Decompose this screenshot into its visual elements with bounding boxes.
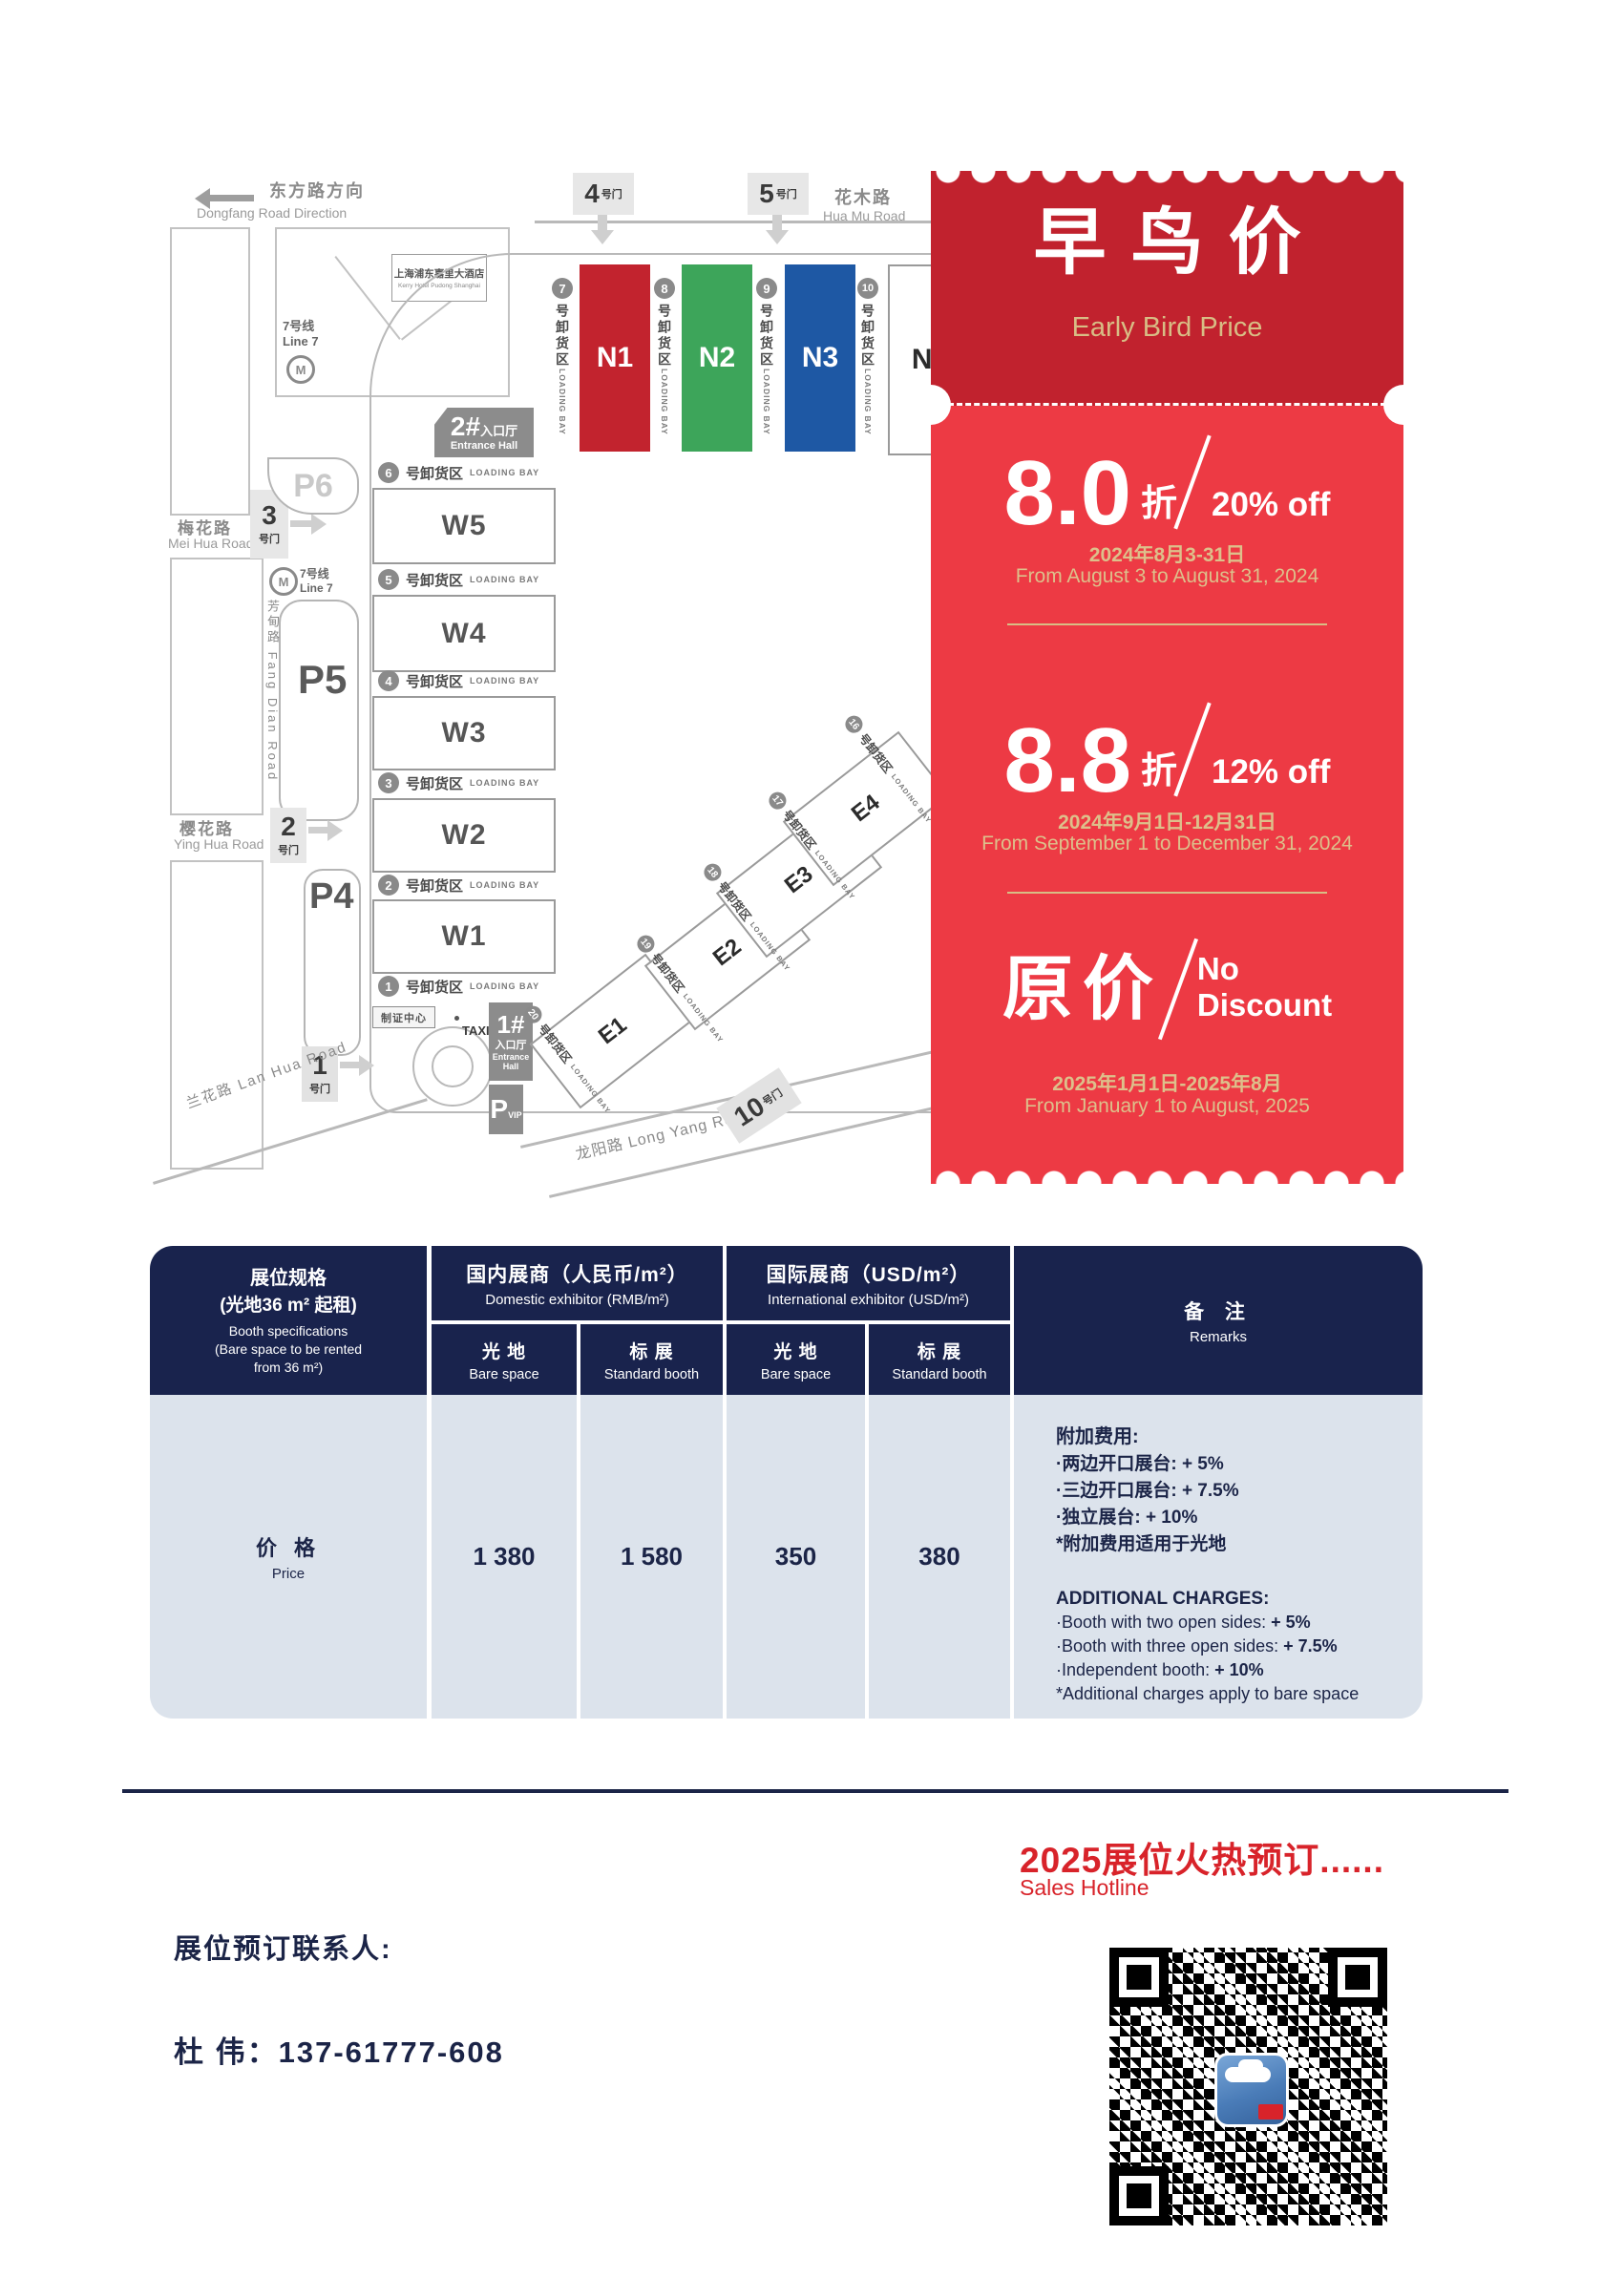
- hall-n3: N3: [785, 264, 855, 452]
- bay-label-zh: 号卸货区: [860, 304, 875, 369]
- price-label-zh: 价 格: [256, 1531, 321, 1562]
- gate-suffix-label: 号门: [278, 842, 299, 857]
- gate-2-number: 2: [281, 813, 296, 840]
- group-domestic-en: Domestic exhibitor (RMB/m²): [485, 1292, 669, 1308]
- banner-scallop-top: [931, 171, 1403, 186]
- qr-center-logo: [1214, 2053, 1289, 2127]
- parking-p4-label: P4: [309, 876, 353, 918]
- remarks-zh-note: *附加费用适用于光地: [1056, 1531, 1403, 1558]
- hall-n2: N2: [682, 264, 752, 452]
- price-domestic-standard: 1 580: [580, 1395, 723, 1719]
- loading-bay-3: 3 号卸货区 LOADING BAY: [378, 772, 539, 793]
- group-domestic-zh: 国内展商（人民币/m²）: [466, 1259, 688, 1288]
- remarks-en-item: ·Independent booth: + 10%: [1056, 1658, 1403, 1682]
- bay-label-en: LOADING BAY: [470, 575, 539, 584]
- flyer-page: 东方路方向 Dongfang Road Direction 花木路 Hua Mu…: [0, 0, 1624, 2278]
- line7-label-zh: 7号线: [300, 565, 333, 581]
- bay-label-zh: 号卸货区: [406, 570, 463, 590]
- loading-bay-4: 4 号卸货区 LOADING BAY: [378, 670, 539, 691]
- table-group-international: 国际展商（USD/m²） International exhibitor (US…: [727, 1246, 1010, 1320]
- footer-divider: [122, 1789, 1508, 1793]
- early-bird-banner: 早鸟价 Early Bird Price 8.0 折 20% off 2024年…: [931, 171, 1403, 1184]
- loading-bay-7: 7 号卸货区LOADING BAY: [551, 278, 574, 435]
- gate-4-arrow-head: [591, 230, 614, 244]
- table-remarks-cell: 附加费用: ·两边开口展台: + 5% ·三边开口展台: + 7.5% ·独立展…: [1014, 1395, 1423, 1719]
- qr-finder-top-right: [1328, 1948, 1387, 2007]
- price-international-bare: 350: [727, 1395, 865, 1719]
- col-bare-en: Bare space: [761, 1367, 831, 1382]
- entrance-2-number: 2#: [451, 411, 480, 441]
- banner-title-zh: 早鸟价: [931, 203, 1403, 284]
- col-standard-en: Standard booth: [604, 1367, 699, 1382]
- spec-en3: from 36 m²): [254, 1359, 323, 1377]
- bay-number: 5: [378, 569, 399, 590]
- gate-3-number: 3: [262, 502, 277, 529]
- bay-label-zh: 号卸货区: [406, 671, 463, 691]
- line7-label-en: Line 7: [283, 334, 319, 348]
- slash-divider: [1173, 702, 1211, 796]
- entrance-1-en: Entrance Hall: [489, 1052, 533, 1071]
- gate-suffix-label: 号门: [601, 186, 622, 201]
- remarks-head-en: Remarks: [1190, 1329, 1247, 1345]
- bay-label-en: LOADING BAY: [762, 369, 771, 435]
- city-block: [170, 558, 264, 815]
- parking-p6-label: P6: [293, 468, 333, 505]
- loading-bay-5: 5 号卸货区 LOADING BAY: [378, 569, 539, 590]
- price-label-en: Price: [272, 1566, 305, 1582]
- tier-2-unit: 折: [1141, 741, 1177, 793]
- gate-4: 4 号门: [573, 173, 634, 215]
- bay-label-en: LOADING BAY: [470, 778, 539, 788]
- china-flag-icon: [1258, 2104, 1283, 2120]
- meihua-road-label-en: Mei Hua Road: [168, 536, 254, 551]
- hall-w1: W1: [372, 899, 556, 974]
- table-price-label-cell: 价 格 Price: [150, 1395, 427, 1719]
- spec-zh1: 展位规格: [250, 1264, 327, 1293]
- bay-number: 2: [378, 875, 399, 896]
- bay-label-zh: 号卸货区: [406, 773, 463, 793]
- gate-1-arrow-icon: [340, 1062, 359, 1068]
- gate-2-arrow-icon: [308, 827, 327, 833]
- gold-divider: [1007, 892, 1327, 894]
- group-international-zh: 国际展商（USD/m²）: [767, 1259, 971, 1288]
- remarks-en-item: ·Booth with two open sides: + 5%: [1056, 1611, 1403, 1635]
- loading-bay-9: 9 号卸货区LOADING BAY: [755, 278, 778, 435]
- entrance-2-en: Entrance Hall: [434, 440, 534, 452]
- table-remarks-header: 备 注 Remarks: [1014, 1246, 1423, 1395]
- remarks-en-note: *Additional charges apply to bare space: [1056, 1682, 1403, 1706]
- metro-glyph: M: [296, 363, 306, 377]
- tier-2-date-zh: 2024年9月1日-12月31日: [931, 807, 1403, 835]
- gate-5-number: 5: [759, 180, 774, 207]
- bay-label-zh: 号卸货区: [759, 304, 774, 369]
- tier-1-value: 8.0: [1004, 456, 1131, 532]
- parking-p5-label: P5: [298, 657, 347, 703]
- bay-label-en: LOADING BAY: [470, 468, 539, 477]
- table-col-bare-international: 光 地 Bare space: [727, 1324, 865, 1395]
- bay-number: 8: [654, 278, 675, 299]
- gate-3-arrow-head: [311, 514, 327, 535]
- city-block: [170, 860, 264, 1170]
- bay-label-en: LOADING BAY: [470, 676, 539, 686]
- tier-3-date-en: From January 1 to August, 2025: [931, 1095, 1403, 1118]
- tier-3-discount-line1: No: [1197, 951, 1332, 987]
- tier-3-date-zh: 2025年1月1日-2025年8月: [931, 1068, 1403, 1097]
- spec-en1: Booth specifications: [229, 1322, 348, 1340]
- entrance-1-zh: 入口厅: [489, 1037, 533, 1052]
- bay-label-zh: 号卸货区: [555, 304, 570, 369]
- qr-finder-top-left: [1109, 1948, 1169, 2007]
- vip-parking-p: P: [490, 1094, 508, 1125]
- taxi-dot: [454, 1016, 459, 1021]
- banner-notch-right: [1383, 385, 1424, 425]
- remarks-en-title: ADDITIONAL CHARGES:: [1056, 1587, 1403, 1611]
- hotline-subtitle: Sales Hotline: [1020, 1875, 1149, 1901]
- banner-dashed-divider: [948, 403, 1386, 406]
- remarks-zh-item: ·独立展台: + 10%: [1056, 1505, 1403, 1531]
- bay-number: 3: [378, 772, 399, 793]
- tier-2-date-en: From September 1 to December 31, 2024: [931, 833, 1403, 855]
- bay-number: 10: [857, 278, 878, 299]
- contact-label: 展位预订联系人:: [174, 1927, 392, 1967]
- table-spec-header: 展位规格 (光地36 m² 起租) Booth specifications (…: [150, 1246, 427, 1395]
- qr-finder-bottom-left: [1109, 2166, 1169, 2225]
- table-col-standard-international: 标 展 Standard booth: [869, 1324, 1010, 1395]
- bay-number: 7: [552, 278, 573, 299]
- remarks-zh-title: 附加费用:: [1056, 1424, 1403, 1451]
- loading-bay-1: 1 号卸货区 LOADING BAY: [378, 976, 539, 997]
- bay-label-zh: 号卸货区: [406, 977, 463, 997]
- bay-number: 6: [378, 462, 399, 483]
- gate-5-arrow-icon: [772, 215, 782, 230]
- line7-label-en: Line 7: [300, 581, 333, 595]
- gate-4-number: 4: [584, 180, 600, 207]
- slash-divider: [1158, 939, 1198, 1041]
- col-standard-zh: 标 展: [629, 1338, 673, 1363]
- banner-title-en: Early Bird Price: [931, 312, 1403, 344]
- bay-label-zh: 号卸货区: [406, 875, 463, 896]
- price-international-standard: 380: [869, 1395, 1010, 1719]
- table-group-domestic: 国内展商（人民币/m²） Domestic exhibitor (RMB/m²): [432, 1246, 723, 1320]
- parking-p5: [279, 600, 359, 821]
- bay-label-zh: 号卸货区: [657, 304, 672, 369]
- banner-scallop-bottom: [931, 1169, 1403, 1184]
- col-bare-zh: 光 地: [482, 1338, 526, 1363]
- contact-phone: 杜 伟：137-61777-608: [174, 2028, 504, 2071]
- bay-number: 1: [378, 976, 399, 997]
- col-bare-en: Bare space: [469, 1367, 538, 1382]
- metro-icon: M: [286, 355, 315, 384]
- loading-bay-6: 6 号卸货区 LOADING BAY: [378, 462, 539, 483]
- tier-2: 8.8 折 12% off: [931, 688, 1403, 799]
- bay-label-en: LOADING BAY: [660, 369, 669, 435]
- hall-n1: N1: [580, 264, 650, 452]
- remarks-en-item: ·Booth with three open sides: + 7.5%: [1056, 1635, 1403, 1658]
- tier-1-date-zh: 2024年8月3-31日: [931, 539, 1403, 568]
- huamu-road-label-en: Hua Mu Road: [823, 208, 905, 223]
- gate-5-arrow-head: [766, 230, 789, 244]
- fangdian-road-label: 芳甸路 Fang Dian Road: [264, 600, 282, 838]
- gate-2-arrow-head: [327, 820, 343, 841]
- vip-parking-sub: VIP: [508, 1110, 522, 1120]
- bay-number: 9: [756, 278, 777, 299]
- group-international-en: International exhibitor (USD/m²): [768, 1292, 969, 1308]
- gate-4-arrow-icon: [598, 215, 607, 230]
- loading-bay-8: 8 号卸货区LOADING BAY: [653, 278, 676, 435]
- dongfang-road-label-en: Dongfang Road Direction: [197, 205, 347, 221]
- gate-2: 2 号门: [270, 808, 306, 863]
- col-standard-zh: 标 展: [917, 1338, 961, 1363]
- city-block: [170, 227, 250, 516]
- slash-divider: [1173, 434, 1211, 529]
- bay-label-en: LOADING BAY: [470, 981, 539, 991]
- loading-bay-10: 10 号卸货区LOADING BAY: [856, 278, 879, 435]
- gate-5: 5 号门: [748, 173, 809, 215]
- entrance-2-zh: 入口厅: [480, 424, 517, 438]
- entrance-hall-2-badge: 2#入口厅 Entrance Hall: [434, 408, 534, 457]
- tier-2-discount: 12% off: [1212, 753, 1330, 791]
- col-bare-zh: 光 地: [773, 1338, 817, 1363]
- metro-icon: M: [269, 567, 298, 596]
- tier-3: 原价 No Discount: [931, 931, 1403, 1047]
- remarks-zh-item: ·三边开口展台: + 7.5%: [1056, 1478, 1403, 1505]
- cloud-icon: [1238, 2059, 1263, 2073]
- tier-1: 8.0 折 20% off: [931, 421, 1403, 532]
- hall-w4: W4: [372, 595, 556, 672]
- huamu-road-label-zh: 花木路: [834, 184, 892, 209]
- spec-en2: (Bare space to be rented: [215, 1340, 362, 1359]
- gate-1-arrow-head: [359, 1055, 374, 1076]
- bay-number: 4: [378, 670, 399, 691]
- dongfang-road-label-zh: 东方路方向: [269, 178, 365, 202]
- wechat-qr-code: [1098, 1936, 1399, 2237]
- bay-label-zh: 号卸货区: [406, 463, 463, 483]
- roundabout-inner: [432, 1045, 474, 1087]
- gold-divider: [1007, 623, 1327, 625]
- banner-notch-left: [911, 385, 951, 425]
- tier-1-date-en: From August 3 to August 31, 2024: [931, 565, 1403, 588]
- taxi-label: TAXI: [462, 1023, 490, 1038]
- price-domestic-bare: 1 380: [432, 1395, 577, 1719]
- bay-label-en: LOADING BAY: [470, 880, 539, 890]
- spec-zh2: (光地36 m² 起租): [220, 1293, 357, 1320]
- gate-suffix-label: 号门: [259, 531, 280, 546]
- badge-center-label: 制证中心: [381, 1010, 427, 1025]
- bay-label-en: LOADING BAY: [558, 369, 567, 435]
- col-standard-en: Standard booth: [892, 1367, 986, 1382]
- loading-bay-2: 2 号卸货区 LOADING BAY: [378, 875, 539, 896]
- remarks-zh-item: ·两边开口展台: + 5%: [1056, 1451, 1403, 1478]
- metro-glyph: M: [279, 575, 289, 589]
- table-col-bare-domestic: 光 地 Bare space: [432, 1324, 577, 1395]
- tier-3-value: 原价: [1002, 956, 1163, 1023]
- gate-suffix-label: 号门: [309, 1081, 330, 1096]
- tier-1-discount: 20% off: [1212, 486, 1330, 524]
- badge-center-box: 制证中心: [372, 1006, 435, 1028]
- tier-2-value: 8.8: [1004, 724, 1131, 799]
- bay-label-en: LOADING BAY: [863, 369, 873, 435]
- gate-suffix-label: 号门: [776, 186, 797, 201]
- tier-3-discount-line2: Discount: [1197, 987, 1332, 1023]
- yinghua-road-label-en: Ying Hua Road: [174, 836, 264, 852]
- table-col-standard-domestic: 标 展 Standard booth: [580, 1324, 723, 1395]
- remarks-head-zh: 备 注: [1184, 1297, 1253, 1325]
- gate-3-arrow-icon: [290, 520, 311, 527]
- tier-1-unit: 折: [1141, 474, 1177, 526]
- line7-label-zh: 7号线: [283, 316, 319, 334]
- hall-w2: W2: [372, 798, 556, 873]
- vip-parking-badge: P VIP: [489, 1085, 523, 1134]
- hall-w5: W5: [372, 488, 556, 564]
- hall-w3: W3: [372, 696, 556, 770]
